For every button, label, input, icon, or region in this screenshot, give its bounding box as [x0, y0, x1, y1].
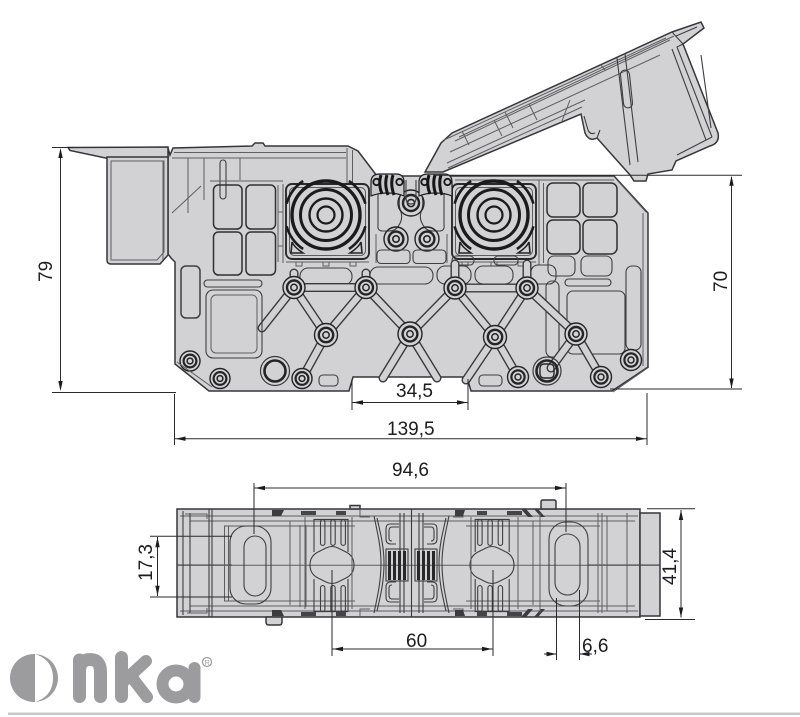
- svg-text:60: 60: [406, 631, 427, 652]
- svg-text:139,5: 139,5: [387, 419, 435, 440]
- svg-text:70: 70: [711, 271, 732, 292]
- svg-text:41,4: 41,4: [660, 548, 681, 585]
- svg-text:94,6: 94,6: [392, 460, 429, 481]
- svg-text:R: R: [205, 660, 210, 667]
- svg-text:6,6: 6,6: [582, 636, 608, 657]
- svg-text:17,3: 17,3: [136, 544, 157, 581]
- svg-text:79: 79: [36, 261, 57, 282]
- svg-text:34,5: 34,5: [396, 381, 433, 402]
